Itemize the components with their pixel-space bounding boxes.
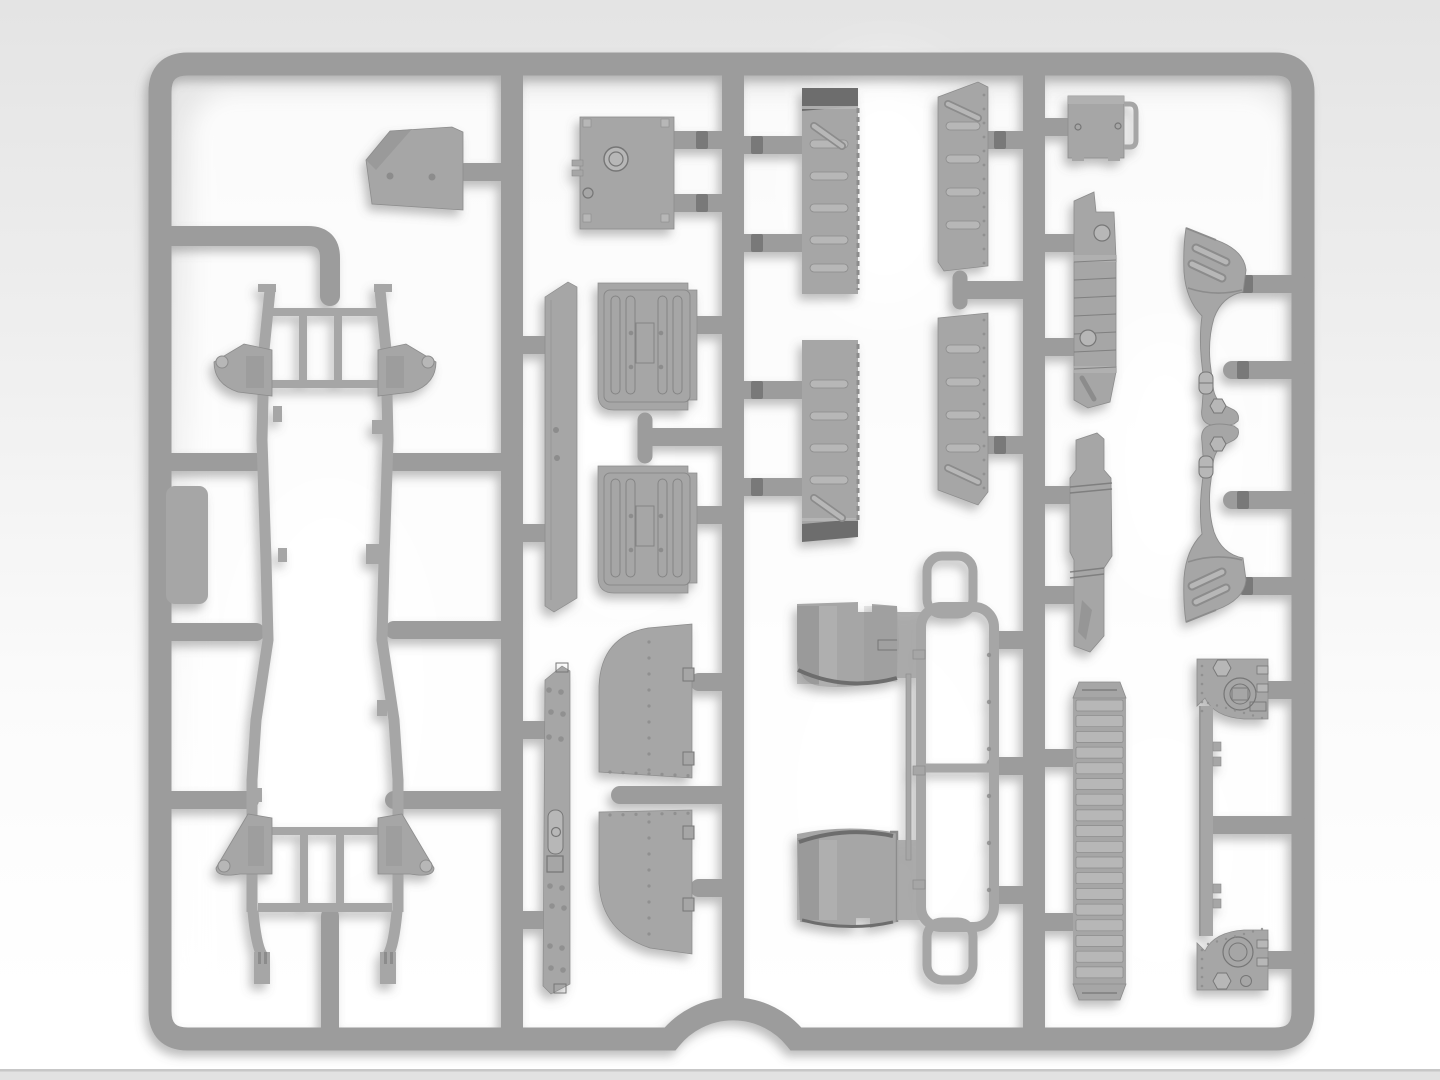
part-seat-backrest-2 [797, 828, 921, 928]
sprue-photo [0, 0, 1440, 1080]
part-muffler [1073, 192, 1117, 408]
part-seat-backrest-1 [797, 602, 921, 687]
part-bed-side-panel-1 [802, 88, 858, 294]
sprue-render [0, 0, 1440, 1080]
part-running-board-1 [545, 282, 577, 612]
part-radiator-assembly [572, 117, 674, 229]
floor-line [0, 1069, 1440, 1072]
part-side-step-plate [166, 486, 208, 604]
part-grille-louver-panel [1073, 682, 1126, 1000]
part-wiper-rod [906, 674, 911, 860]
part-running-board-2 [543, 663, 570, 994]
part-door-card-1 [599, 624, 694, 778]
